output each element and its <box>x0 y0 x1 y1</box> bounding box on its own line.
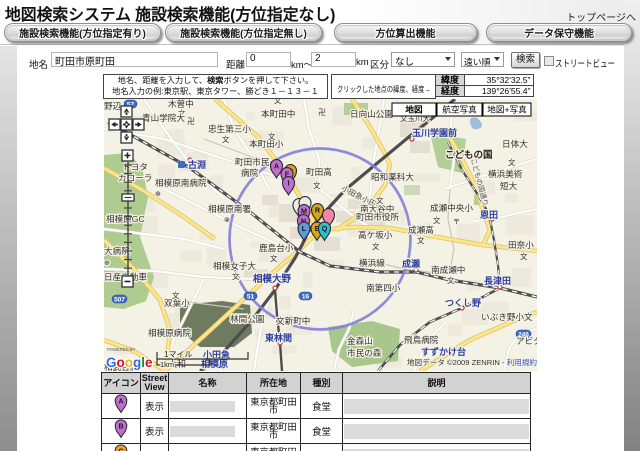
svg-text:こどもの国: こどもの国 <box>445 149 493 161</box>
svg-text:すずかけ台: すずかけ台 <box>421 346 466 357</box>
svg-text:町田市民: 町田市民 <box>235 156 270 167</box>
svg-text:地図データ ©2009 ZENRIN - 利用規約: 地図データ ©2009 ZENRIN - 利用規約 <box>407 357 537 367</box>
svg-text:相模原南病院: 相模原南病院 <box>155 177 207 188</box>
svg-text:日体大: 日体大 <box>502 138 528 149</box>
svg-text:相模原病院: 相模原病院 <box>148 327 191 338</box>
svg-text:市民の森: 市民の森 <box>347 347 382 358</box>
svg-text:文: 文 <box>520 251 528 261</box>
svg-text:南第四小: 南第四小 <box>366 282 401 293</box>
svg-text:文: 文 <box>433 215 441 225</box>
svg-text:古淵: 古淵 <box>188 159 206 170</box>
svg-text:カローラ: カローラ <box>118 173 152 183</box>
svg-text:Q: Q <box>322 224 328 233</box>
svg-text:成瀬: 成瀬 <box>402 258 420 269</box>
svg-text:⊕: ⊕ <box>155 191 161 198</box>
svg-text:南成瀬中: 南成瀬中 <box>431 264 465 275</box>
svg-text:文: 文 <box>268 131 276 141</box>
svg-text:⊕: ⊕ <box>104 260 110 267</box>
svg-text:林間公園: 林間公園 <box>230 313 264 324</box>
svg-text:横浜線: 横浜線 <box>359 257 385 268</box>
svg-text:忠生第三小: 忠生第三小 <box>208 123 251 134</box>
svg-text:文: 文 <box>508 157 516 167</box>
svg-text:本町田中: 本町田中 <box>261 108 295 119</box>
svg-text:青山学院大: 青山学院大 <box>142 112 185 123</box>
svg-text:いぶき野小文: いぶき野小文 <box>481 311 533 322</box>
svg-text:相模原: 相模原 <box>201 358 228 369</box>
svg-text:トヨタ: トヨタ <box>122 162 148 172</box>
svg-text:L: L <box>302 224 307 233</box>
svg-text:相模女子大: 相模女子大 <box>213 260 256 271</box>
svg-text:地図: 地図 <box>405 104 423 115</box>
svg-text:木曽中: 木曽中 <box>168 99 194 109</box>
svg-text:16: 16 <box>302 294 310 301</box>
svg-text:鹿島台小: 鹿島台小 <box>259 242 294 253</box>
svg-text:POWERED BY: POWERED BY <box>107 347 136 352</box>
svg-text:日向山公園: 日向山公園 <box>350 108 393 119</box>
svg-text:成瀬中央小: 成瀬中央小 <box>430 202 473 213</box>
svg-text:Google: Google <box>106 355 153 370</box>
svg-text:高ケ坂小: 高ケ坂小 <box>358 229 393 240</box>
svg-text:町田市役所: 町田市役所 <box>356 211 399 222</box>
svg-text:文: 文 <box>232 271 240 281</box>
svg-text:文: 文 <box>274 99 282 105</box>
svg-text:飛鳥病院: 飛鳥病院 <box>404 334 439 345</box>
svg-text:東林間: 東林間 <box>265 332 292 343</box>
svg-text:本町田小: 本町田小 <box>249 138 284 149</box>
svg-text:地図+写真: 地図+写真 <box>487 104 527 115</box>
svg-text:昭和薬科大: 昭和薬科大 <box>371 171 414 182</box>
svg-text:507: 507 <box>114 297 125 304</box>
svg-text:1km: 1km <box>160 360 174 369</box>
svg-text:〒: 〒 <box>453 219 460 226</box>
svg-text:長津田: 長津田 <box>484 275 511 286</box>
svg-text:文: 文 <box>447 275 455 285</box>
svg-text:玉川学園前: 玉川学園前 <box>412 127 457 138</box>
svg-text:文: 文 <box>417 235 425 245</box>
svg-text:文: 文 <box>270 253 278 263</box>
svg-text:文: 文 <box>372 241 380 251</box>
svg-text:文新町中: 文新町中 <box>276 315 310 326</box>
svg-text:⊗: ⊗ <box>224 217 230 224</box>
svg-text:成瀬高: 成瀬高 <box>408 224 434 235</box>
svg-text:卍: 卍 <box>318 108 326 117</box>
svg-text:文: 文 <box>222 134 230 144</box>
svg-text:B: B <box>119 423 124 430</box>
svg-text:I: I <box>288 179 290 188</box>
svg-text:横浜美術: 横浜美術 <box>488 168 523 179</box>
svg-text:つくし野: つくし野 <box>445 298 481 308</box>
svg-text:野辺: 野辺 <box>104 101 122 111</box>
svg-text:A: A <box>274 162 279 171</box>
svg-text:金森山: 金森山 <box>347 335 373 346</box>
svg-text:アビタ: アビタ <box>516 336 537 346</box>
svg-text:卍: 卍 <box>187 117 195 126</box>
svg-text:文: 文 <box>172 290 180 300</box>
svg-text:A: A <box>119 398 124 405</box>
svg-text:短大: 短大 <box>500 180 518 191</box>
svg-text:恩田: 恩田 <box>479 210 498 220</box>
svg-text:相模原GC: 相模原GC <box>106 213 145 224</box>
svg-text:R: R <box>315 206 321 215</box>
svg-text:航空写真: 航空写真 <box>442 104 477 115</box>
svg-text:51: 51 <box>247 294 255 301</box>
svg-text:病院: 病院 <box>241 168 259 178</box>
svg-text:相模原南署: 相模原南署 <box>208 203 251 214</box>
svg-text:田奈小: 田奈小 <box>508 239 534 250</box>
svg-text:文: 文 <box>376 195 384 205</box>
svg-text:1マイル: 1マイル <box>164 350 192 359</box>
svg-text:文: 文 <box>313 180 321 190</box>
svg-text:相模大野: 相模大野 <box>253 273 292 285</box>
svg-text:町田高: 町田高 <box>306 166 332 177</box>
